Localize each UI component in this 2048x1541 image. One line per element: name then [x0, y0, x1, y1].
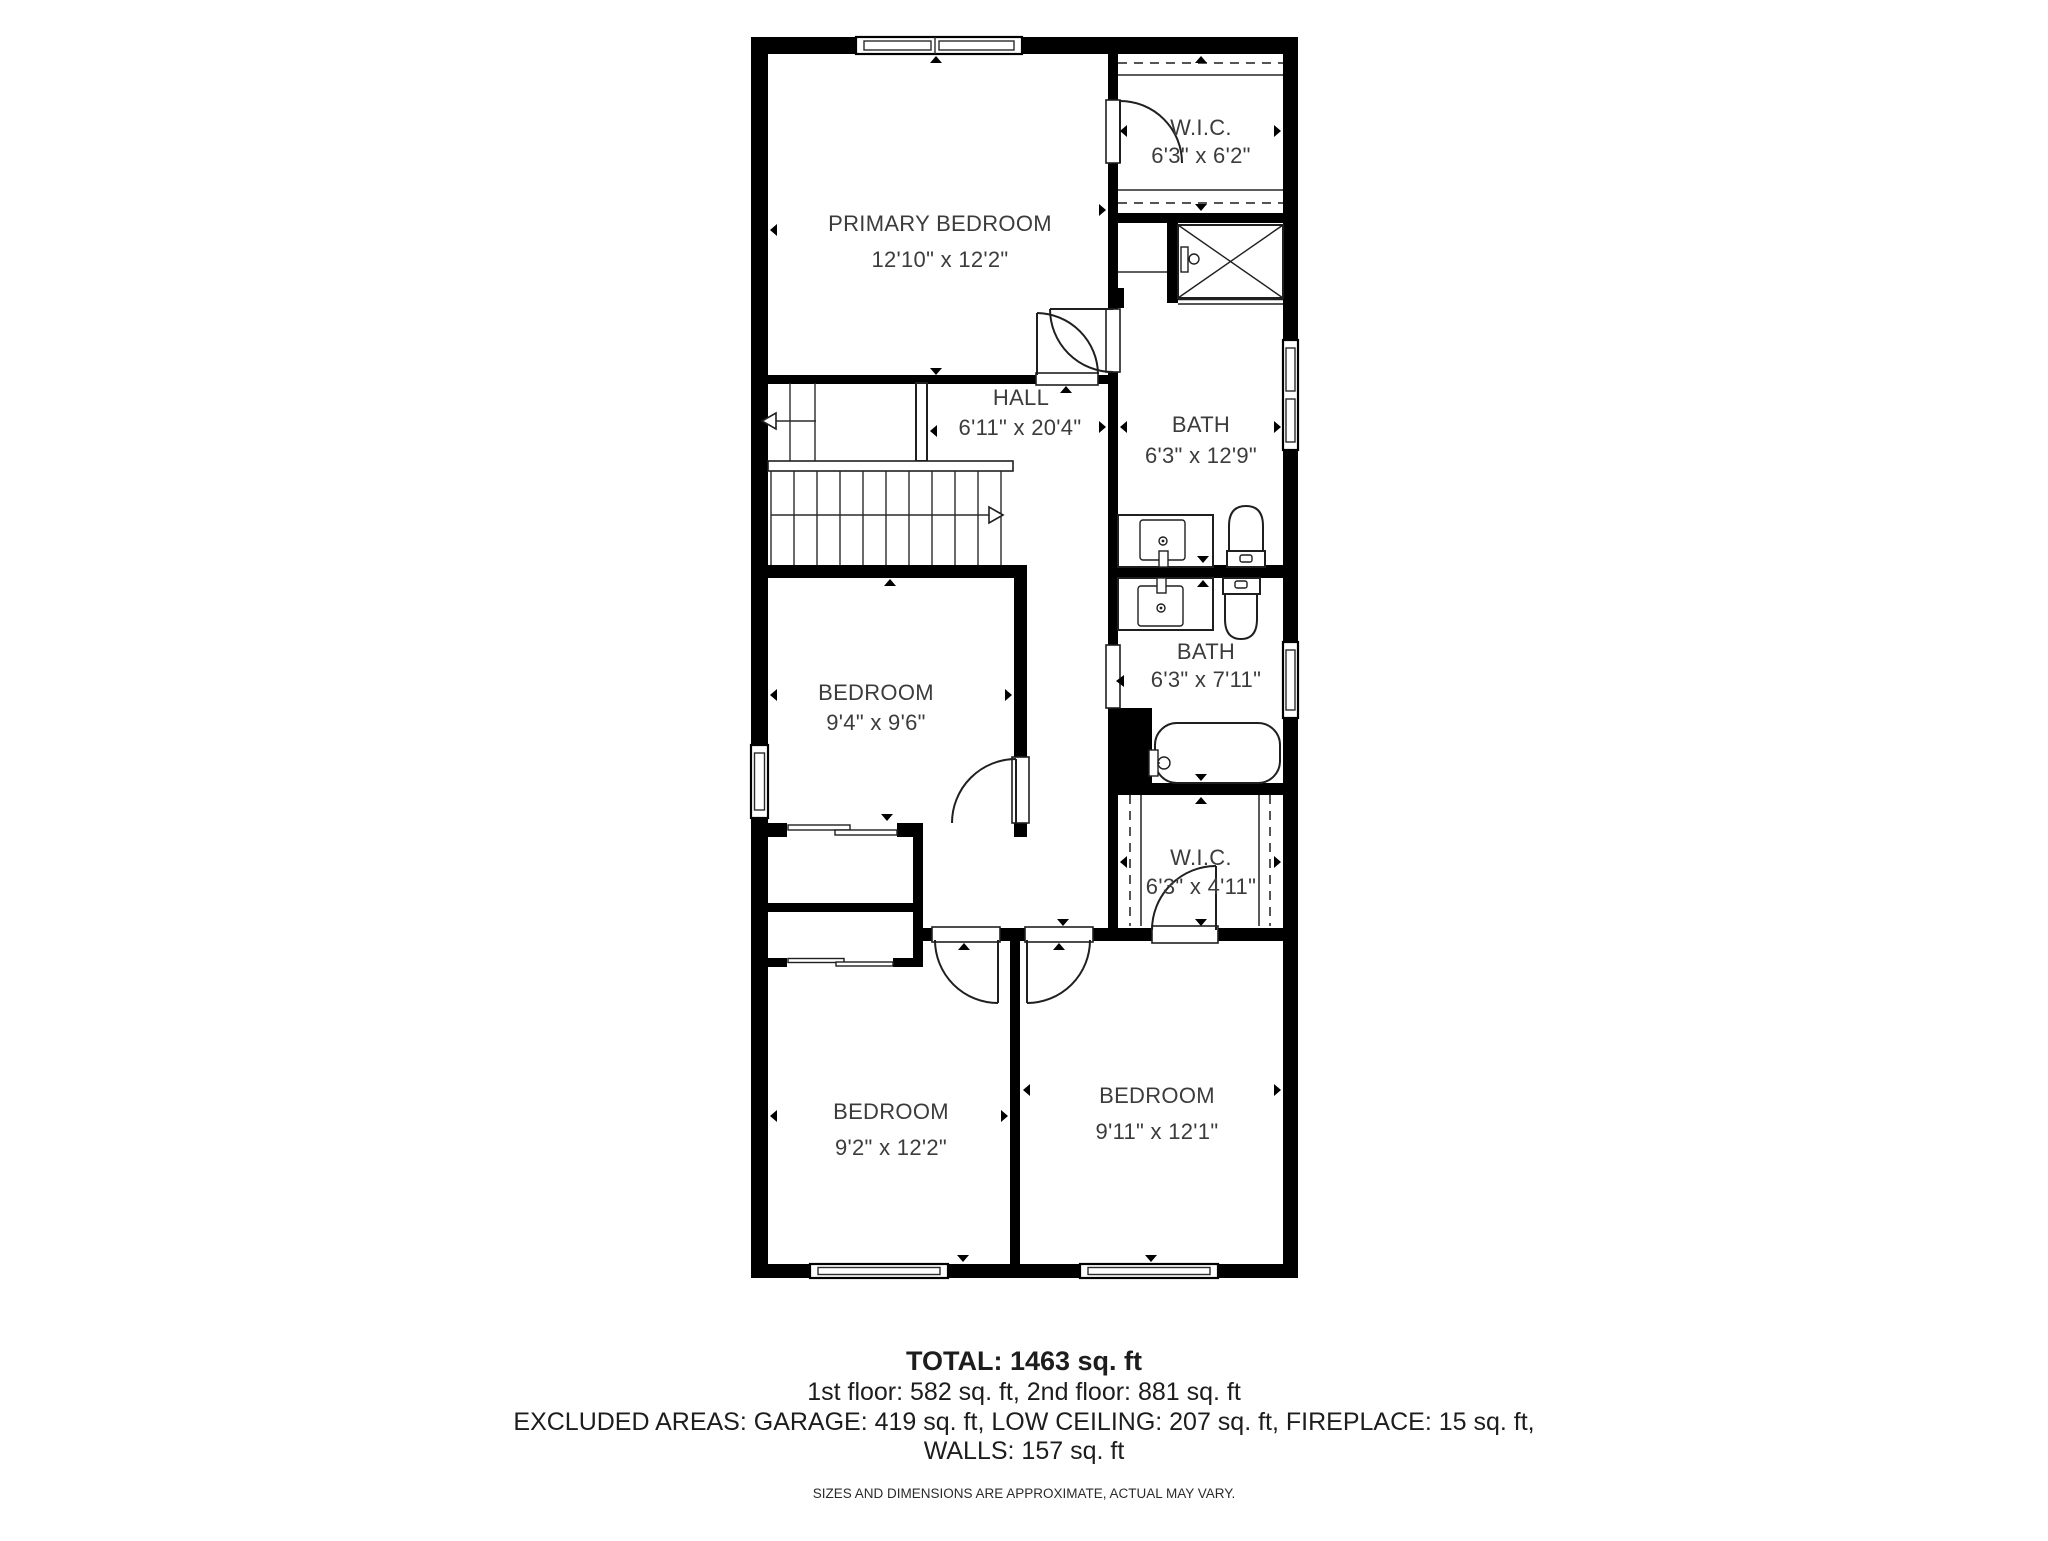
- svg-text:9'2" x 12'2": 9'2" x 12'2": [835, 1135, 947, 1160]
- svg-text:BEDROOM: BEDROOM: [818, 680, 934, 705]
- svg-text:6'3" x 12'9": 6'3" x 12'9": [1145, 443, 1257, 468]
- bath1-toilet: [1227, 506, 1265, 567]
- window-left-bedroom: [751, 745, 768, 818]
- room-label-hall: HALL 6'11" x 20'4": [959, 385, 1082, 440]
- svg-text:9'11" x 12'1": 9'11" x 12'1": [1096, 1119, 1219, 1144]
- svg-text:BATH: BATH: [1177, 639, 1235, 664]
- excluded-areas-text-line2: WALLS: 157 sq. ft: [0, 1437, 2048, 1466]
- bath2-toilet: [1223, 578, 1260, 639]
- closet-sliding-doors-bottom-left-bedroom: [787, 958, 893, 967]
- svg-text:BEDROOM: BEDROOM: [1099, 1083, 1215, 1108]
- svg-text:BEDROOM: BEDROOM: [833, 1099, 949, 1124]
- room-label-bath2: BATH 6'3" x 7'11": [1151, 639, 1261, 692]
- shower: [1178, 225, 1283, 304]
- total-area-text: TOTAL: 1463 sq. ft: [0, 1346, 2048, 1377]
- floor-plan-svg: PRIMARY BEDROOM 12'10" x 12'2" W.I.C. 6'…: [0, 0, 2048, 1536]
- svg-text:W.I.C.: W.I.C.: [1170, 115, 1232, 140]
- floor-areas-text: 1st floor: 582 sq. ft, 2nd floor: 881 sq…: [0, 1378, 2048, 1407]
- svg-text:9'4" x 9'6": 9'4" x 9'6": [826, 710, 926, 735]
- door-primary-bedroom: [1036, 313, 1098, 385]
- stair-direction-arrow-up-flight: [762, 413, 816, 429]
- svg-text:6'3" x 7'11": 6'3" x 7'11": [1151, 667, 1261, 692]
- window-right-bath1: [1283, 340, 1298, 450]
- staircase: [762, 383, 1013, 565]
- stair-treads: [771, 471, 1001, 565]
- window-bottom-left-bedroom: [810, 1264, 948, 1278]
- svg-text:6'3" x 4'11": 6'3" x 4'11": [1146, 874, 1256, 899]
- stair-railing: [916, 383, 927, 461]
- svg-text:6'3" x 6'2": 6'3" x 6'2": [1151, 143, 1251, 168]
- svg-text:PRIMARY BEDROOM: PRIMARY BEDROOM: [828, 211, 1052, 236]
- closet-sliding-doors-middle-bedroom: [787, 823, 897, 837]
- window-right-bath2: [1283, 642, 1298, 718]
- door-bottom-left-bedroom: [932, 927, 1000, 1003]
- room-label-middle-bedroom: BEDROOM 9'4" x 9'6": [818, 680, 934, 735]
- disclaimer-text: SIZES AND DIMENSIONS ARE APPROXIMATE, AC…: [0, 1486, 2048, 1501]
- room-label-bottom-right-bedroom: BEDROOM 9'11" x 12'1": [1096, 1083, 1219, 1144]
- room-label-wic2: W.I.C. 6'3" x 4'11": [1146, 845, 1256, 899]
- doorway-bath2: [1106, 645, 1124, 708]
- bathtub: [1149, 723, 1280, 783]
- stair-landing-edge: [768, 461, 1013, 471]
- room-label-primary-bedroom: PRIMARY BEDROOM 12'10" x 12'2": [828, 211, 1052, 272]
- room-label-bath1: BATH 6'3" x 12'9": [1145, 412, 1257, 468]
- door-bottom-right-bedroom: [1025, 927, 1093, 1003]
- svg-text:BATH: BATH: [1172, 412, 1230, 437]
- stair-direction-arrow-down-flight: [771, 507, 1003, 523]
- svg-text:12'10" x 12'2": 12'10" x 12'2": [871, 247, 1008, 272]
- door-middle-bedroom: [952, 757, 1029, 823]
- svg-text:HALL: HALL: [993, 385, 1049, 410]
- svg-text:6'11" x 20'4": 6'11" x 20'4": [959, 415, 1082, 440]
- svg-text:W.I.C.: W.I.C.: [1170, 845, 1232, 870]
- window-bottom-right-bedroom: [1080, 1264, 1218, 1278]
- bath1-vanity: [1118, 515, 1213, 567]
- window-top-primary: [856, 37, 1022, 54]
- floor-plan-page: { "colors": { "background": "#ffffff", "…: [0, 0, 2048, 1536]
- room-label-bottom-left-bedroom: BEDROOM 9'2" x 12'2": [833, 1099, 949, 1160]
- excluded-areas-text-line1: EXCLUDED AREAS: GARAGE: 419 sq. ft, LOW …: [0, 1408, 2048, 1437]
